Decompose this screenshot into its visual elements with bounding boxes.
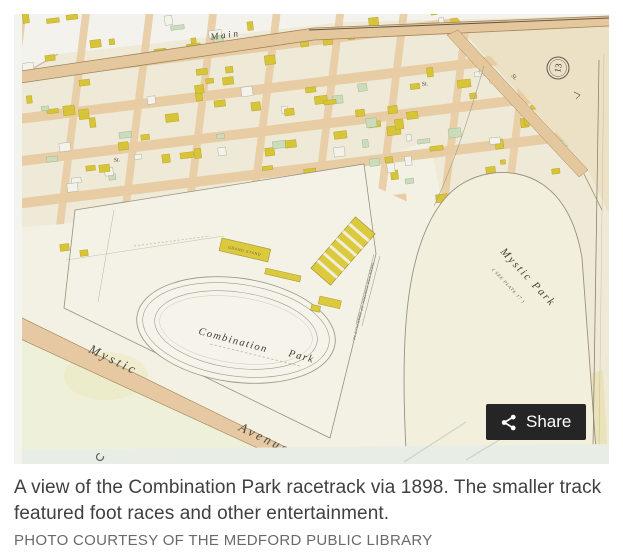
map-label-st-a: St. [422, 81, 429, 88]
map-label-st-c: St. [114, 157, 121, 164]
share-button-label: Share [526, 412, 571, 432]
small-building [60, 243, 70, 251]
share-icon [501, 414, 517, 431]
small-building [80, 250, 89, 257]
historic-map-image: Main St. St. St. 13 Mystic Park ( SEE PL… [14, 14, 609, 464]
share-button[interactable]: Share [486, 404, 586, 440]
scan-margin-left [14, 14, 22, 464]
article-media-block: Main St. St. St. 13 Mystic Park ( SEE PL… [0, 0, 623, 559]
map-photo: Main St. St. St. 13 Mystic Park ( SEE PL… [14, 14, 609, 464]
caption-block: A view of the Combination Park racetrack… [14, 475, 610, 550]
photo-credit: PHOTO COURTESY OF THE MEDFORD PUBLIC LIB… [14, 531, 610, 550]
photo-caption: A view of the Combination Park racetrack… [14, 475, 610, 527]
